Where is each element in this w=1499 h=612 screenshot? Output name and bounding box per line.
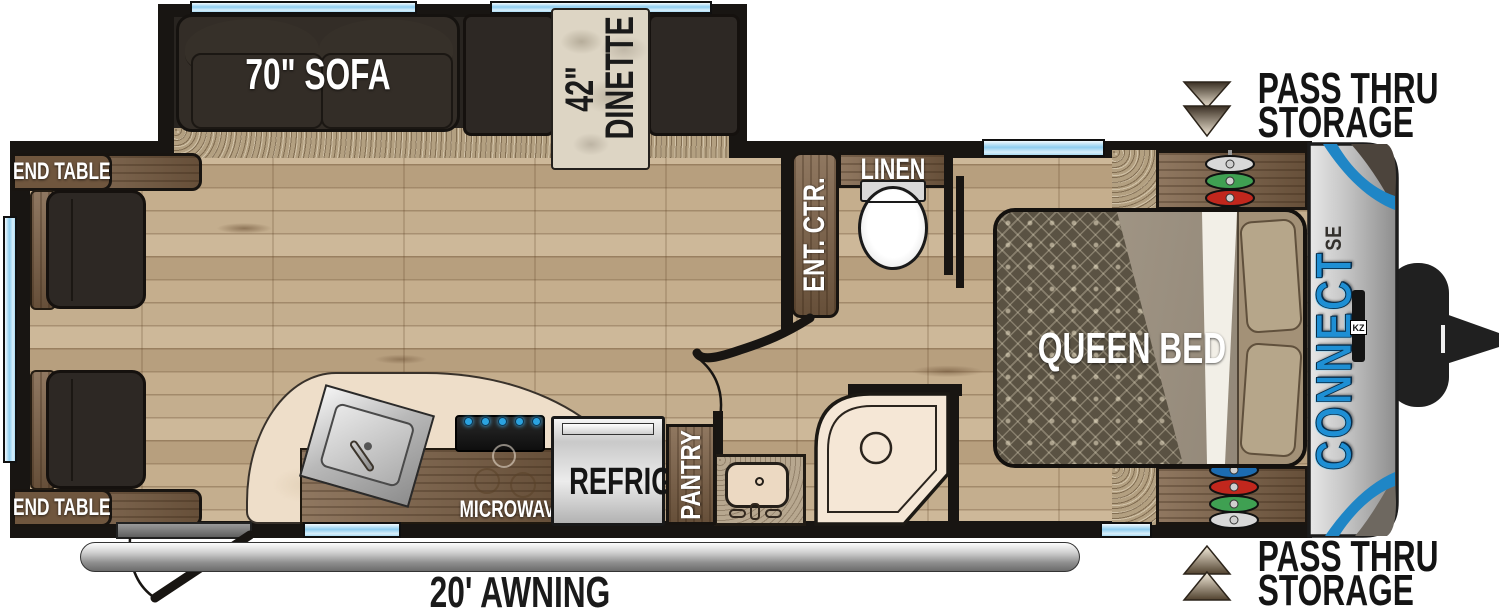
wall-bath-b — [956, 176, 964, 288]
refrig-label: REFRIG — [569, 461, 647, 504]
floorplan-canvas: 70" SOFA 42" DINETTE END TABLE END TABLE… — [0, 0, 1499, 612]
burner-ring — [492, 444, 516, 468]
refrigerator-vent — [562, 423, 654, 435]
refrigerator: REFRIG — [551, 416, 665, 526]
microwave-label: MICROWAVE — [460, 496, 545, 524]
bedroom-carpet — [1112, 466, 1158, 525]
chair-seam — [71, 379, 73, 481]
pantry-label: PANTRY — [675, 430, 707, 520]
brand-logo-text: KZ — [1353, 323, 1365, 333]
wall-bath-a — [944, 152, 953, 275]
faucet-spout — [750, 503, 760, 520]
pass-thru-label: STORAGE — [1258, 106, 1390, 140]
slideout-living: 70" SOFA 42" DINETTE — [158, 0, 747, 158]
bath-door — [680, 300, 830, 440]
arrow-up-icon — [1180, 542, 1234, 604]
pass-thru-label: STORAGE — [1258, 574, 1390, 608]
queen-bed-label: QUEEN BED — [1038, 332, 1196, 366]
recliner-chair — [46, 190, 146, 309]
ent-ctr-label: ENT. CTR. — [798, 178, 832, 293]
cooktop-knob — [481, 417, 490, 426]
cooktop-knob — [498, 417, 507, 426]
dinette-size-label: 42" — [560, 39, 600, 140]
end-table-bottom: END TABLE — [12, 489, 112, 527]
bed-pillow — [1239, 218, 1303, 334]
recliner-chair — [46, 370, 146, 489]
rear-window — [3, 216, 17, 463]
toilet-seat-line — [867, 201, 919, 203]
faucet-handle — [765, 509, 782, 518]
bath-sink — [725, 462, 789, 508]
bedroom-window — [982, 139, 1105, 157]
pass-thru-storage-bottom: PASS THRU STORAGE — [1232, 540, 1416, 608]
window — [1100, 522, 1152, 538]
end-table-label: END TABLE — [13, 158, 111, 186]
faucet-handle — [729, 509, 746, 518]
sofa-label: 70" SOFA — [223, 58, 413, 92]
end-table-top: END TABLE — [12, 153, 112, 191]
brand-trim: SE — [1321, 225, 1346, 251]
awning-label: 20' AWNING — [412, 576, 628, 610]
cooktop-knob — [464, 417, 473, 426]
bath-sink-drain — [755, 477, 764, 486]
dinette-name-label: DINETTE — [600, 39, 640, 140]
burner-ring — [510, 472, 536, 498]
decor-disc-stack — [1208, 458, 1260, 530]
slideout-wall-left — [158, 4, 174, 158]
brand-wordmark: CONNECTSE — [1311, 198, 1357, 498]
bedroom-carpet — [1112, 150, 1158, 210]
bath-vanity — [714, 454, 806, 526]
burner-ring — [474, 468, 500, 494]
dinette-label: 42" DINETTE — [530, 19, 670, 159]
arrow-down-icon — [1180, 80, 1234, 140]
cooktop-knob — [515, 417, 524, 426]
bed-pillow — [1239, 342, 1303, 458]
queen-bed: QUEEN BED — [993, 208, 1307, 468]
brand-logo: KZ — [1350, 320, 1367, 335]
hitch — [1385, 255, 1499, 415]
entertainment-center: ENT. CTR. — [791, 152, 839, 318]
chair-seam — [71, 199, 73, 301]
toilet — [858, 186, 928, 270]
window — [303, 522, 401, 538]
pass-thru-storage-top: PASS THRU STORAGE — [1232, 72, 1416, 140]
cooktop-knob — [532, 417, 541, 426]
end-table-label: END TABLE — [13, 494, 111, 522]
pantry: PANTRY — [666, 424, 716, 525]
window — [190, 1, 417, 14]
